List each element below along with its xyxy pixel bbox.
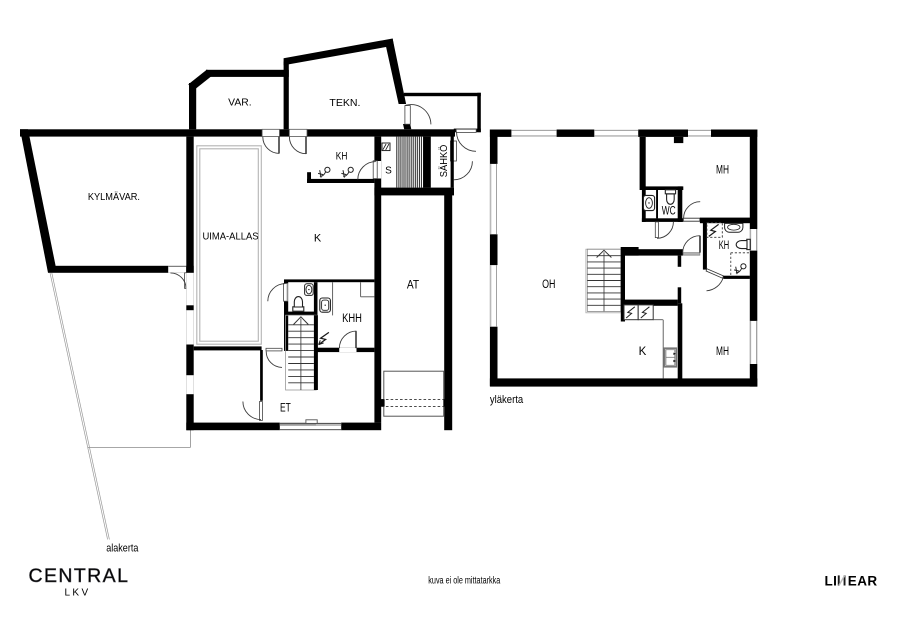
svg-text:K: K bbox=[639, 346, 647, 358]
svg-text:KHH: KHH bbox=[342, 313, 362, 325]
svg-text:KH: KH bbox=[336, 151, 348, 163]
svg-text:ET: ET bbox=[280, 403, 291, 415]
svg-text:CENTRAL: CENTRAL bbox=[29, 565, 130, 587]
svg-text:MH: MH bbox=[716, 346, 729, 358]
svg-text:KYLMÄVAR.: KYLMÄVAR. bbox=[88, 191, 140, 203]
svg-text:EAR: EAR bbox=[848, 574, 878, 589]
svg-text:LKV: LKV bbox=[64, 588, 90, 599]
svg-text:kuva ei ole mittatarkka: kuva ei ole mittatarkka bbox=[428, 575, 500, 586]
svg-text:UIMA-ALLAS: UIMA-ALLAS bbox=[202, 231, 258, 242]
svg-text:TEKN.: TEKN. bbox=[329, 98, 360, 109]
svg-text:KH: KH bbox=[719, 240, 729, 252]
svg-text:yläkerta: yläkerta bbox=[490, 394, 524, 406]
svg-text:alakerta: alakerta bbox=[106, 543, 139, 555]
svg-text:S: S bbox=[385, 166, 392, 177]
svg-text:OH: OH bbox=[542, 277, 555, 291]
svg-text:K: K bbox=[314, 233, 322, 245]
svg-text:MH: MH bbox=[716, 164, 729, 176]
svg-text:WC: WC bbox=[662, 205, 676, 217]
svg-text:SÄHKÖ: SÄHKÖ bbox=[438, 144, 450, 177]
svg-text:AT: AT bbox=[407, 279, 419, 291]
svg-text:VAR.: VAR. bbox=[228, 97, 251, 108]
svg-text:LI: LI bbox=[825, 574, 838, 589]
